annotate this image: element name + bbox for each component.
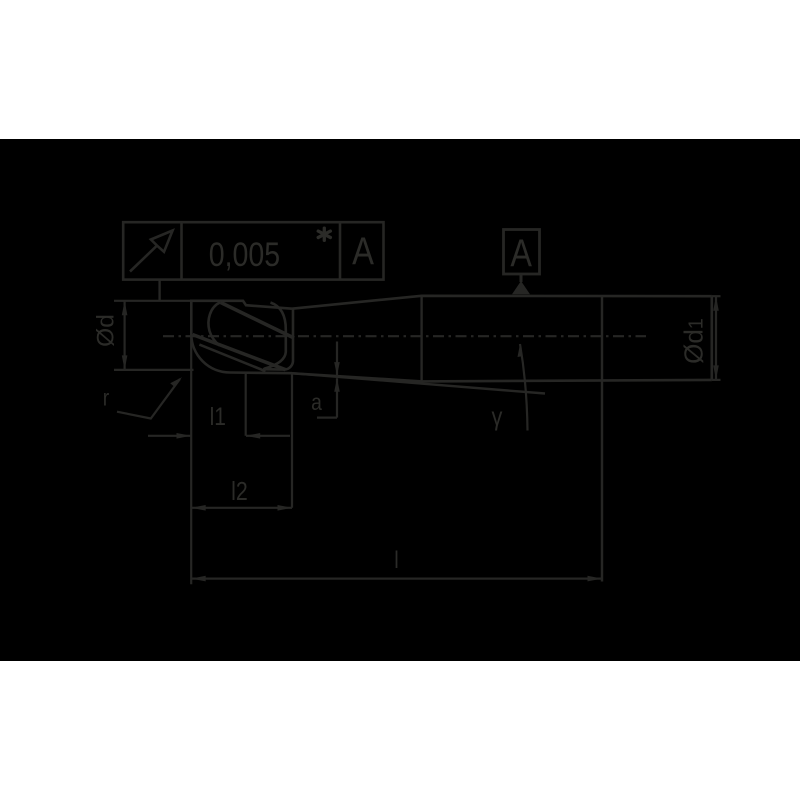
svg-text:Ød: Ød [93, 314, 120, 347]
svg-text:l2: l2 [231, 477, 248, 505]
svg-text:Ød1: Ød1 [679, 318, 709, 364]
svg-text:l1: l1 [210, 402, 226, 430]
svg-text:r: r [103, 386, 109, 411]
svg-text:l: l [394, 546, 398, 573]
svg-text:0,005: 0,005 [209, 236, 280, 274]
svg-text:γ: γ [492, 402, 503, 431]
svg-text:A: A [510, 232, 532, 275]
svg-text:A: A [352, 229, 374, 273]
svg-text:a: a [311, 391, 322, 416]
